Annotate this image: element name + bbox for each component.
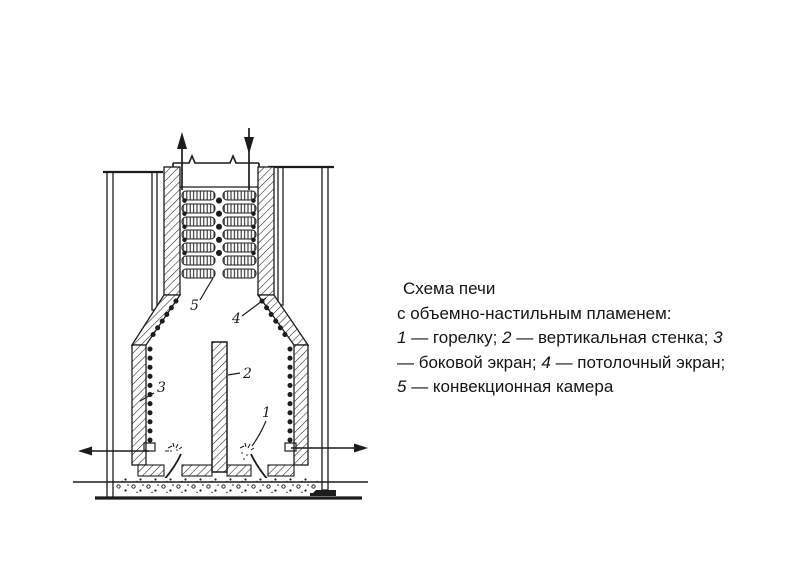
burner-duct-right: [251, 454, 268, 480]
foundation-rubble: [115, 478, 320, 493]
caption: Схема печи с объемно-настильным пламенем…: [397, 277, 772, 400]
caption-text: — вертикальная стенка;: [512, 328, 714, 347]
caption-line-items-3: 5 — конвекционная камера: [397, 375, 772, 400]
right-arrow-icon: [354, 444, 368, 453]
caption-text: — конвекционная камера: [406, 377, 613, 396]
label-ceiling-screen: 4: [231, 311, 241, 327]
transition-shoulders: [132, 295, 308, 345]
right-outer-column: [322, 167, 328, 490]
caption-text: — потолочный экран;: [551, 353, 725, 372]
left-arrow-icon: [78, 447, 92, 456]
convection-tube-bank: [182, 191, 256, 278]
caption-line-subtitle: с объемно-настильным пламенем:: [397, 302, 772, 327]
caption-text: Схема печи: [403, 279, 495, 298]
caption-text: — боковой экран;: [397, 353, 541, 372]
caption-line-items-2: — боковой экран; 4 — потолочный экран;: [397, 351, 772, 376]
down-arrow-icon: [244, 137, 254, 154]
shoulder-left: [132, 295, 180, 345]
caption-line-title: Схема печи: [397, 277, 772, 302]
leader-2: [228, 373, 240, 375]
vertical-radiating-wall: [212, 342, 227, 472]
burner-duct-left: [164, 454, 181, 480]
leader-4: [242, 298, 266, 316]
radiant-chamber: [73, 342, 368, 498]
furnace-diagram: 5 4 3 2 1: [70, 120, 380, 540]
caption-number: 2: [502, 328, 511, 347]
top-cover-with-breaks: [173, 156, 259, 168]
label-side-screen: 3: [157, 380, 166, 396]
caption-line-items-1: 1 — горелку; 2 — вертикальная стенка; 3: [397, 326, 772, 351]
caption-number: 4: [541, 353, 550, 372]
stack-pipes: [173, 128, 259, 190]
caption-text: с объемно-настильным пламенем:: [397, 304, 672, 323]
label-convection-chamber: 5: [190, 298, 199, 314]
flame-sparks-left: [165, 443, 182, 452]
leader-1: [252, 421, 266, 446]
right-inner-column: [278, 167, 283, 305]
up-arrow-icon: [177, 132, 187, 149]
label-vertical-wall: 2: [242, 366, 252, 382]
left-outer-column: [107, 172, 113, 498]
caption-number: 3: [713, 328, 722, 347]
leader-5: [200, 278, 213, 300]
left-inner-column: [152, 172, 157, 310]
furnace-diagram-svg: 5 4 3 2 1: [70, 120, 380, 540]
shaft-wall-right: [258, 167, 274, 295]
shaft-wall-left: [164, 167, 180, 295]
caption-text: — горелку;: [406, 328, 502, 347]
slide-page: 5 4 3 2 1 Схема печи с объемно-настильны…: [0, 0, 800, 565]
label-burner: 1: [262, 405, 271, 421]
convection-section: [164, 167, 274, 295]
